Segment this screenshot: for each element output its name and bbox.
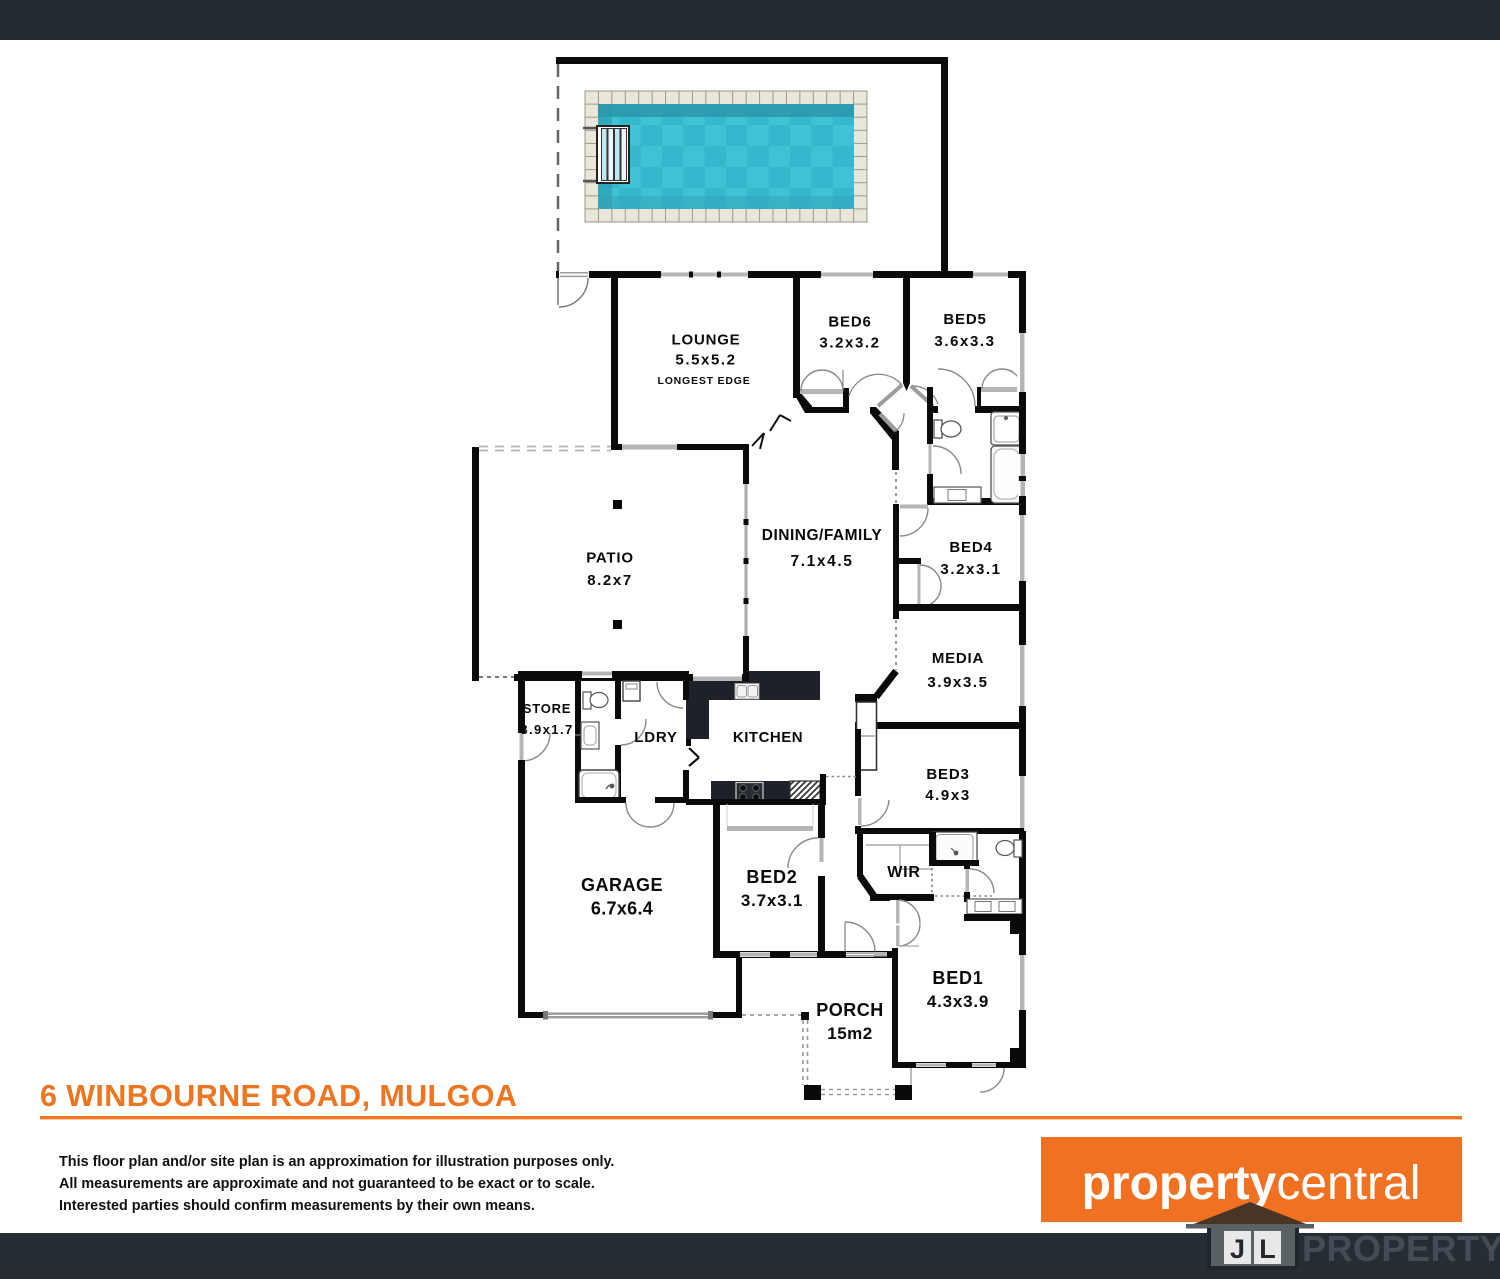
svg-text:3.2x3.2: 3.2x3.2 [819,335,880,352]
svg-text:3.9x3.5: 3.9x3.5 [927,674,988,691]
svg-text:propertycentral: propertycentral [1082,1157,1421,1210]
svg-text:BED4: BED4 [949,539,992,556]
svg-text:STORE: STORE [523,701,572,716]
svg-text:BED1: BED1 [932,968,983,988]
svg-text:PATIO: PATIO [586,550,634,567]
svg-text:5.5x5.2: 5.5x5.2 [675,352,736,369]
svg-text:KITCHEN: KITCHEN [733,729,803,746]
svg-text:DINING/FAMILY: DINING/FAMILY [762,527,883,544]
svg-text:LOUNGE: LOUNGE [672,332,741,349]
svg-text:3.7x3.1: 3.7x3.1 [741,891,803,910]
svg-text:4.3x3.9: 4.3x3.9 [927,992,989,1011]
svg-text:BED5: BED5 [943,311,986,328]
svg-text:L: L [1259,1234,1276,1264]
svg-text:BED6: BED6 [828,314,871,331]
svg-text:6 WINBOURNE ROAD, MULGOA: 6 WINBOURNE ROAD, MULGOA [40,1079,517,1113]
svg-text:6.7x6.4: 6.7x6.4 [591,899,653,919]
svg-text:GARAGE: GARAGE [581,875,663,895]
svg-text:3.9x1.7: 3.9x1.7 [520,722,573,737]
svg-text:4.9x3: 4.9x3 [925,787,971,804]
svg-text:WIR: WIR [887,864,921,881]
svg-text:LDRY: LDRY [634,729,677,746]
svg-text:3.6x3.3: 3.6x3.3 [934,333,995,350]
svg-text:MEDIA: MEDIA [932,650,984,667]
svg-text:J: J [1230,1234,1245,1264]
svg-text:Interested parties should conf: Interested parties should confirm measur… [59,1198,535,1214]
svg-text:This floor plan and/or site pl: This floor plan and/or site plan is an a… [59,1154,614,1170]
svg-text:PROPERTY: PROPERTY [1302,1228,1500,1269]
svg-text:15m2: 15m2 [827,1024,872,1043]
svg-text:BED3: BED3 [926,766,969,783]
svg-text:BED2: BED2 [746,867,797,887]
svg-text:PORCH: PORCH [816,1000,884,1020]
svg-text:8.2x7: 8.2x7 [587,572,633,589]
svg-text:LONGEST EDGE: LONGEST EDGE [657,375,750,387]
svg-text:7.1x4.5: 7.1x4.5 [791,553,854,570]
svg-text:3.2x3.1: 3.2x3.1 [940,561,1001,578]
svg-text:All measurements are approxima: All measurements are approximate and not… [59,1176,595,1192]
